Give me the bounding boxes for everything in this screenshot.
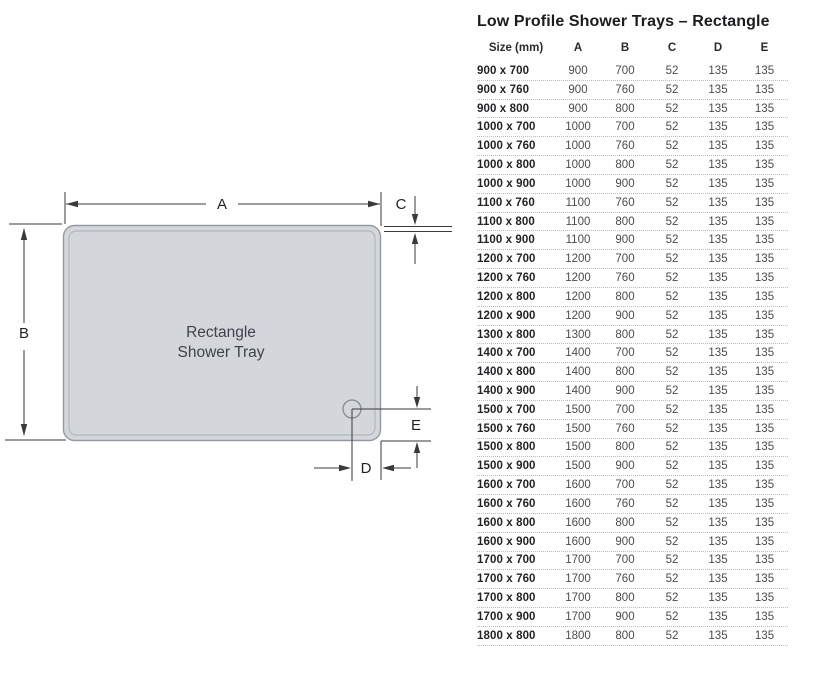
table-row: 900 x 700 900 700 52 135 135: [477, 62, 788, 81]
value-d-cell: 135: [695, 498, 741, 510]
value-a-cell: 1700: [555, 573, 601, 585]
size-table: Size (mm) A B C D E 900 x 700 900 700 52…: [477, 40, 788, 646]
value-c-cell: 52: [649, 347, 695, 359]
value-e-cell: 135: [741, 140, 788, 152]
value-c-cell: 52: [649, 404, 695, 416]
value-a-cell: 900: [555, 65, 601, 77]
value-c-cell: 52: [649, 366, 695, 378]
table-row: 1000 x 900 1000 900 52 135 135: [477, 175, 788, 194]
value-b-cell: 700: [601, 65, 649, 77]
size-cell: 1000 x 760: [477, 140, 555, 152]
value-b-cell: 800: [601, 441, 649, 453]
header-b: B: [601, 42, 649, 54]
size-cell: 1400 x 800: [477, 366, 555, 378]
value-e-cell: 135: [741, 216, 788, 228]
header-e: E: [741, 42, 788, 54]
size-cell: 1500 x 700: [477, 404, 555, 416]
value-b-cell: 760: [601, 272, 649, 284]
value-c-cell: 52: [649, 573, 695, 585]
value-e-cell: 135: [741, 611, 788, 623]
value-d-cell: 135: [695, 178, 741, 190]
value-d-cell: 135: [695, 347, 741, 359]
table-row: 1800 x 800 1800 800 52 135 135: [477, 627, 788, 646]
table-row: 1600 x 900 1600 900 52 135 135: [477, 533, 788, 552]
value-a-cell: 1400: [555, 347, 601, 359]
value-d-cell: 135: [695, 197, 741, 209]
shower-tray-diagram: Rectangle Shower Tray A B: [0, 185, 460, 500]
value-e-cell: 135: [741, 272, 788, 284]
value-b-cell: 900: [601, 536, 649, 548]
value-e-cell: 135: [741, 441, 788, 453]
spec-sheet-page: Rectangle Shower Tray A B: [0, 0, 815, 700]
value-b-cell: 800: [601, 216, 649, 228]
value-c-cell: 52: [649, 103, 695, 115]
value-e-cell: 135: [741, 460, 788, 472]
table-row: 1400 x 700 1400 700 52 135 135: [477, 344, 788, 363]
value-d-cell: 135: [695, 121, 741, 133]
value-c-cell: 52: [649, 630, 695, 642]
size-cell: 1300 x 800: [477, 329, 555, 341]
table-row: 1700 x 800 1700 800 52 135 135: [477, 589, 788, 608]
table-row: 1300 x 800 1300 800 52 135 135: [477, 326, 788, 345]
value-b-cell: 760: [601, 197, 649, 209]
value-b-cell: 760: [601, 498, 649, 510]
dimension-b-label: B: [19, 325, 29, 342]
dimension-c-label: C: [396, 196, 407, 213]
size-cell: 1600 x 900: [477, 536, 555, 548]
value-c-cell: 52: [649, 517, 695, 529]
value-c-cell: 52: [649, 178, 695, 190]
table-row: 1500 x 760 1500 760 52 135 135: [477, 420, 788, 439]
dimension-e-label: E: [411, 417, 421, 434]
table-row: 1400 x 800 1400 800 52 135 135: [477, 363, 788, 382]
table-row: 1400 x 900 1400 900 52 135 135: [477, 382, 788, 401]
table-row: 1700 x 900 1700 900 52 135 135: [477, 608, 788, 627]
table-row: 900 x 800 900 800 52 135 135: [477, 100, 788, 119]
value-c-cell: 52: [649, 554, 695, 566]
value-a-cell: 1200: [555, 291, 601, 303]
value-a-cell: 1700: [555, 592, 601, 604]
value-a-cell: 1600: [555, 498, 601, 510]
value-d-cell: 135: [695, 272, 741, 284]
value-a-cell: 1500: [555, 423, 601, 435]
table-row: 1600 x 700 1600 700 52 135 135: [477, 476, 788, 495]
value-d-cell: 135: [695, 517, 741, 529]
value-c-cell: 52: [649, 611, 695, 623]
value-a-cell: 900: [555, 84, 601, 96]
table-row: 1200 x 900 1200 900 52 135 135: [477, 307, 788, 326]
tray-label-line2: Shower Tray: [177, 344, 264, 361]
value-d-cell: 135: [695, 554, 741, 566]
value-d-cell: 135: [695, 404, 741, 416]
value-a-cell: 900: [555, 103, 601, 115]
table-row: 1100 x 800 1100 800 52 135 135: [477, 213, 788, 232]
value-e-cell: 135: [741, 423, 788, 435]
value-a-cell: 1300: [555, 329, 601, 341]
table-row: 1000 x 700 1000 700 52 135 135: [477, 118, 788, 137]
table-row: 1100 x 760 1100 760 52 135 135: [477, 194, 788, 213]
size-cell: 1700 x 900: [477, 611, 555, 623]
value-b-cell: 800: [601, 291, 649, 303]
value-b-cell: 700: [601, 554, 649, 566]
value-b-cell: 760: [601, 140, 649, 152]
table-row: 1200 x 800 1200 800 52 135 135: [477, 288, 788, 307]
value-d-cell: 135: [695, 366, 741, 378]
value-a-cell: 1000: [555, 159, 601, 171]
value-e-cell: 135: [741, 65, 788, 77]
value-c-cell: 52: [649, 234, 695, 246]
size-cell: 1000 x 800: [477, 159, 555, 171]
table-row: 1200 x 760 1200 760 52 135 135: [477, 269, 788, 288]
value-a-cell: 1200: [555, 253, 601, 265]
size-cell: 1100 x 800: [477, 216, 555, 228]
value-a-cell: 1100: [555, 197, 601, 209]
value-a-cell: 1400: [555, 366, 601, 378]
value-b-cell: 760: [601, 84, 649, 96]
value-c-cell: 52: [649, 65, 695, 77]
value-d-cell: 135: [695, 573, 741, 585]
value-c-cell: 52: [649, 197, 695, 209]
value-c-cell: 52: [649, 441, 695, 453]
size-cell: 1600 x 800: [477, 517, 555, 529]
dimension-b: [5, 224, 66, 440]
value-e-cell: 135: [741, 404, 788, 416]
value-e-cell: 135: [741, 347, 788, 359]
value-d-cell: 135: [695, 65, 741, 77]
value-c-cell: 52: [649, 291, 695, 303]
value-e-cell: 135: [741, 592, 788, 604]
dimension-d-label: D: [361, 460, 372, 477]
size-cell: 1200 x 700: [477, 253, 555, 265]
value-b-cell: 800: [601, 329, 649, 341]
value-b-cell: 700: [601, 253, 649, 265]
size-cell: 1700 x 700: [477, 554, 555, 566]
value-d-cell: 135: [695, 423, 741, 435]
value-d-cell: 135: [695, 592, 741, 604]
value-a-cell: 1800: [555, 630, 601, 642]
table-row: 1200 x 700 1200 700 52 135 135: [477, 250, 788, 269]
value-a-cell: 1600: [555, 517, 601, 529]
dimension-a-label: A: [217, 196, 227, 213]
size-cell: 1100 x 760: [477, 197, 555, 209]
value-b-cell: 700: [601, 347, 649, 359]
value-b-cell: 900: [601, 178, 649, 190]
value-e-cell: 135: [741, 630, 788, 642]
value-e-cell: 135: [741, 573, 788, 585]
value-c-cell: 52: [649, 498, 695, 510]
size-cell: 1600 x 700: [477, 479, 555, 491]
value-d-cell: 135: [695, 103, 741, 115]
value-c-cell: 52: [649, 272, 695, 284]
table-body: 900 x 700 900 700 52 135 135 900 x 760 9…: [477, 62, 788, 646]
value-c-cell: 52: [649, 253, 695, 265]
value-b-cell: 900: [601, 310, 649, 322]
value-d-cell: 135: [695, 84, 741, 96]
header-d: D: [695, 42, 741, 54]
size-cell: 900 x 800: [477, 103, 555, 115]
size-cell: 1200 x 800: [477, 291, 555, 303]
value-c-cell: 52: [649, 140, 695, 152]
value-d-cell: 135: [695, 385, 741, 397]
table-row: 1100 x 900 1100 900 52 135 135: [477, 231, 788, 250]
value-c-cell: 52: [649, 121, 695, 133]
value-a-cell: 1600: [555, 479, 601, 491]
size-cell: 1200 x 760: [477, 272, 555, 284]
value-e-cell: 135: [741, 385, 788, 397]
size-cell: 1500 x 760: [477, 423, 555, 435]
value-e-cell: 135: [741, 329, 788, 341]
value-d-cell: 135: [695, 216, 741, 228]
value-b-cell: 900: [601, 460, 649, 472]
value-e-cell: 135: [741, 84, 788, 96]
value-b-cell: 800: [601, 630, 649, 642]
table-row: 1700 x 760 1700 760 52 135 135: [477, 570, 788, 589]
table-row: 1500 x 800 1500 800 52 135 135: [477, 439, 788, 458]
value-c-cell: 52: [649, 460, 695, 472]
table-row: 1500 x 900 1500 900 52 135 135: [477, 457, 788, 476]
dimension-c: [384, 196, 452, 264]
value-e-cell: 135: [741, 554, 788, 566]
header-size: Size (mm): [477, 42, 555, 54]
value-c-cell: 52: [649, 159, 695, 171]
value-d-cell: 135: [695, 291, 741, 303]
value-a-cell: 1000: [555, 178, 601, 190]
value-b-cell: 700: [601, 404, 649, 416]
value-d-cell: 135: [695, 329, 741, 341]
value-d-cell: 135: [695, 630, 741, 642]
size-cell: 1800 x 800: [477, 630, 555, 642]
value-c-cell: 52: [649, 423, 695, 435]
value-e-cell: 135: [741, 536, 788, 548]
value-d-cell: 135: [695, 611, 741, 623]
table-header-row: Size (mm) A B C D E: [477, 40, 788, 56]
value-e-cell: 135: [741, 121, 788, 133]
size-cell: 1700 x 800: [477, 592, 555, 604]
size-cell: 1400 x 700: [477, 347, 555, 359]
value-d-cell: 135: [695, 479, 741, 491]
table-row: 900 x 760 900 760 52 135 135: [477, 81, 788, 100]
value-d-cell: 135: [695, 441, 741, 453]
value-b-cell: 760: [601, 573, 649, 585]
value-b-cell: 800: [601, 366, 649, 378]
value-a-cell: 1100: [555, 234, 601, 246]
header-a: A: [555, 42, 601, 54]
value-b-cell: 700: [601, 479, 649, 491]
value-a-cell: 1100: [555, 216, 601, 228]
value-c-cell: 52: [649, 216, 695, 228]
value-c-cell: 52: [649, 592, 695, 604]
value-a-cell: 1400: [555, 385, 601, 397]
size-cell: 1600 x 760: [477, 498, 555, 510]
header-c: C: [649, 42, 695, 54]
value-b-cell: 800: [601, 592, 649, 604]
value-b-cell: 900: [601, 385, 649, 397]
value-e-cell: 135: [741, 498, 788, 510]
size-cell: 1700 x 760: [477, 573, 555, 585]
value-b-cell: 900: [601, 234, 649, 246]
value-e-cell: 135: [741, 197, 788, 209]
table-row: 1600 x 760 1600 760 52 135 135: [477, 495, 788, 514]
table-row: 1600 x 800 1600 800 52 135 135: [477, 514, 788, 533]
table-row: 1500 x 700 1500 700 52 135 135: [477, 401, 788, 420]
value-d-cell: 135: [695, 536, 741, 548]
table-row: 1700 x 700 1700 700 52 135 135: [477, 552, 788, 571]
value-c-cell: 52: [649, 310, 695, 322]
value-d-cell: 135: [695, 159, 741, 171]
value-c-cell: 52: [649, 329, 695, 341]
size-cell: 1000 x 900: [477, 178, 555, 190]
value-d-cell: 135: [695, 234, 741, 246]
value-a-cell: 1500: [555, 404, 601, 416]
value-b-cell: 900: [601, 611, 649, 623]
size-cell: 1500 x 800: [477, 441, 555, 453]
value-d-cell: 135: [695, 140, 741, 152]
size-cell: 900 x 700: [477, 65, 555, 77]
size-cell: 900 x 760: [477, 84, 555, 96]
size-cell: 1500 x 900: [477, 460, 555, 472]
value-e-cell: 135: [741, 366, 788, 378]
value-a-cell: 1500: [555, 460, 601, 472]
value-e-cell: 135: [741, 103, 788, 115]
value-e-cell: 135: [741, 517, 788, 529]
value-a-cell: 1000: [555, 140, 601, 152]
value-b-cell: 700: [601, 121, 649, 133]
value-a-cell: 1600: [555, 536, 601, 548]
value-c-cell: 52: [649, 385, 695, 397]
value-e-cell: 135: [741, 310, 788, 322]
value-a-cell: 1700: [555, 554, 601, 566]
value-b-cell: 800: [601, 517, 649, 529]
size-cell: 1000 x 700: [477, 121, 555, 133]
value-e-cell: 135: [741, 178, 788, 190]
value-a-cell: 1700: [555, 611, 601, 623]
value-c-cell: 52: [649, 479, 695, 491]
tray-label-line1: Rectangle: [186, 324, 256, 341]
value-d-cell: 135: [695, 460, 741, 472]
value-d-cell: 135: [695, 310, 741, 322]
table-row: 1000 x 760 1000 760 52 135 135: [477, 137, 788, 156]
size-cell: 1400 x 900: [477, 385, 555, 397]
value-b-cell: 800: [601, 159, 649, 171]
value-b-cell: 800: [601, 103, 649, 115]
value-e-cell: 135: [741, 253, 788, 265]
value-b-cell: 760: [601, 423, 649, 435]
value-a-cell: 1000: [555, 121, 601, 133]
value-d-cell: 135: [695, 253, 741, 265]
value-e-cell: 135: [741, 234, 788, 246]
page-title: Low Profile Shower Trays – Rectangle: [477, 13, 770, 31]
size-cell: 1200 x 900: [477, 310, 555, 322]
value-e-cell: 135: [741, 291, 788, 303]
value-a-cell: 1200: [555, 272, 601, 284]
value-c-cell: 52: [649, 84, 695, 96]
value-e-cell: 135: [741, 479, 788, 491]
value-a-cell: 1500: [555, 441, 601, 453]
value-a-cell: 1200: [555, 310, 601, 322]
value-e-cell: 135: [741, 159, 788, 171]
size-cell: 1100 x 900: [477, 234, 555, 246]
table-row: 1000 x 800 1000 800 52 135 135: [477, 156, 788, 175]
value-c-cell: 52: [649, 536, 695, 548]
